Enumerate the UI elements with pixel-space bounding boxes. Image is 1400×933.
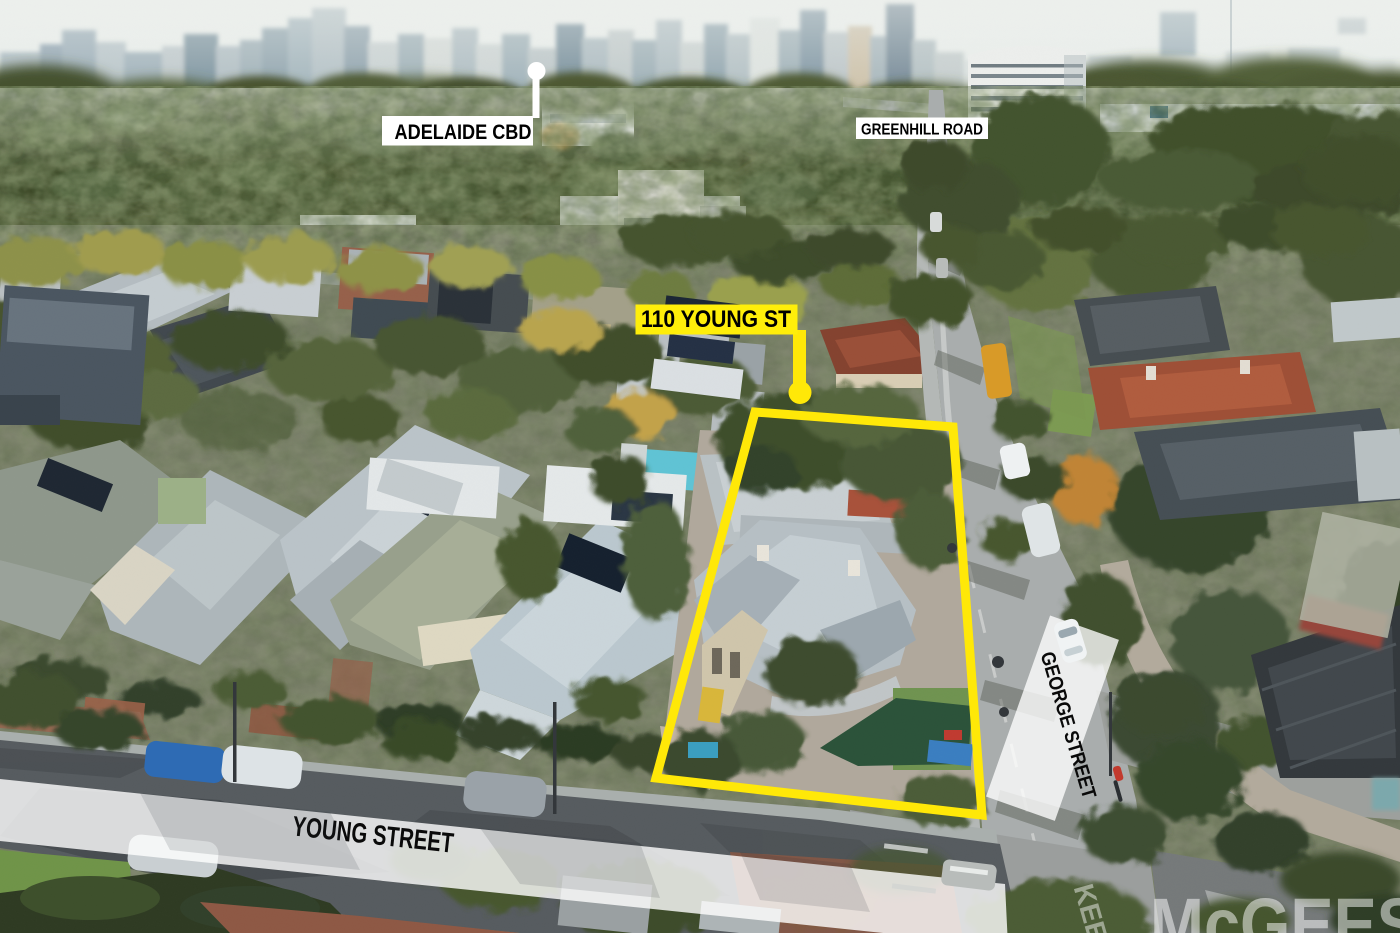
svg-text:110 YOUNG ST: 110 YOUNG ST bbox=[641, 306, 791, 333]
svg-text:McGEES: McGEES bbox=[1150, 883, 1400, 933]
svg-text:GREENHILL ROAD: GREENHILL ROAD bbox=[861, 122, 983, 139]
svg-text:ADELAIDE CBD: ADELAIDE CBD bbox=[395, 121, 532, 144]
